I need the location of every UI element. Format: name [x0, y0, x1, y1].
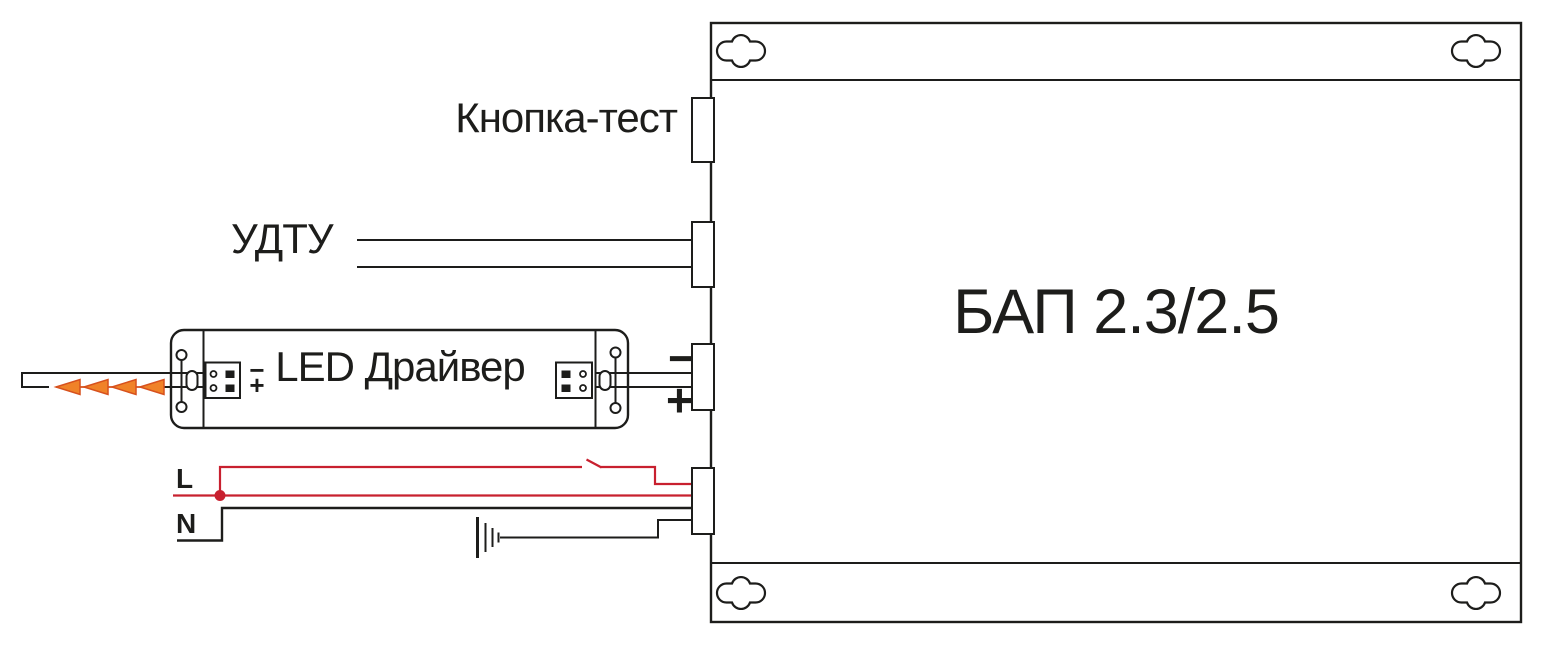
junction-dot-icon	[215, 490, 226, 501]
unit-title: БАП 2.3/2.5	[711, 281, 1521, 344]
line-wire-label: L	[176, 465, 193, 493]
led-direction-arrow-icon	[112, 380, 136, 395]
terminal-contact-icon	[562, 371, 571, 379]
terminal-screw-icon	[211, 385, 217, 391]
terminal-contact-icon	[226, 385, 235, 393]
terminal-screw-icon	[580, 371, 586, 377]
led-direction-arrow-icon	[56, 380, 80, 395]
earth-ground-icon	[478, 517, 499, 558]
driver-right-terminal-block	[556, 363, 592, 399]
driver-polarity-label: −+	[246, 363, 268, 393]
screw-hole-icon	[611, 348, 621, 358]
connector-udtu	[692, 222, 714, 287]
screw-hole-icon	[177, 402, 187, 412]
led-direction-arrow-icon	[84, 380, 108, 395]
wiring-diagram-canvas: БАП 2.3/2.5 Кнопка-тест УДТУ LED Драйвер…	[0, 0, 1547, 650]
wire-earth	[500, 520, 692, 538]
switch-icon	[587, 460, 602, 468]
terminal-block-outline	[556, 363, 592, 399]
driver-polarity-plus: +	[249, 370, 264, 400]
terminal-contact-icon	[226, 371, 235, 379]
terminal-contact-icon	[562, 385, 571, 393]
led-direction-arrows	[56, 380, 164, 395]
udtu-wires	[357, 240, 692, 267]
mains-wiring	[173, 460, 692, 559]
terminal-block-outline	[206, 363, 241, 399]
connector-mains	[692, 468, 714, 534]
neutral-wire-label: N	[176, 510, 196, 538]
led-direction-arrow-icon	[140, 380, 164, 395]
wire-live-switched	[601, 467, 692, 484]
connector-test-button	[692, 98, 714, 162]
wire-live-branch	[220, 467, 582, 496]
output-plus-label: +	[666, 377, 693, 423]
driver-left-terminal-block	[206, 363, 241, 399]
screw-hole-icon	[611, 403, 621, 413]
terminal-screw-icon	[580, 385, 586, 391]
wire-neutral	[177, 508, 692, 541]
cable-clamp-icon	[187, 371, 198, 390]
remote-control-label: УДТУ	[231, 218, 333, 260]
cable-clamp-icon	[600, 371, 611, 390]
terminal-screw-icon	[211, 371, 217, 377]
led-driver-label: LED Драйвер	[260, 346, 540, 388]
test-button-label: Кнопка-тест	[429, 97, 677, 139]
connector-led-output	[692, 344, 714, 410]
screw-hole-icon	[177, 350, 187, 360]
